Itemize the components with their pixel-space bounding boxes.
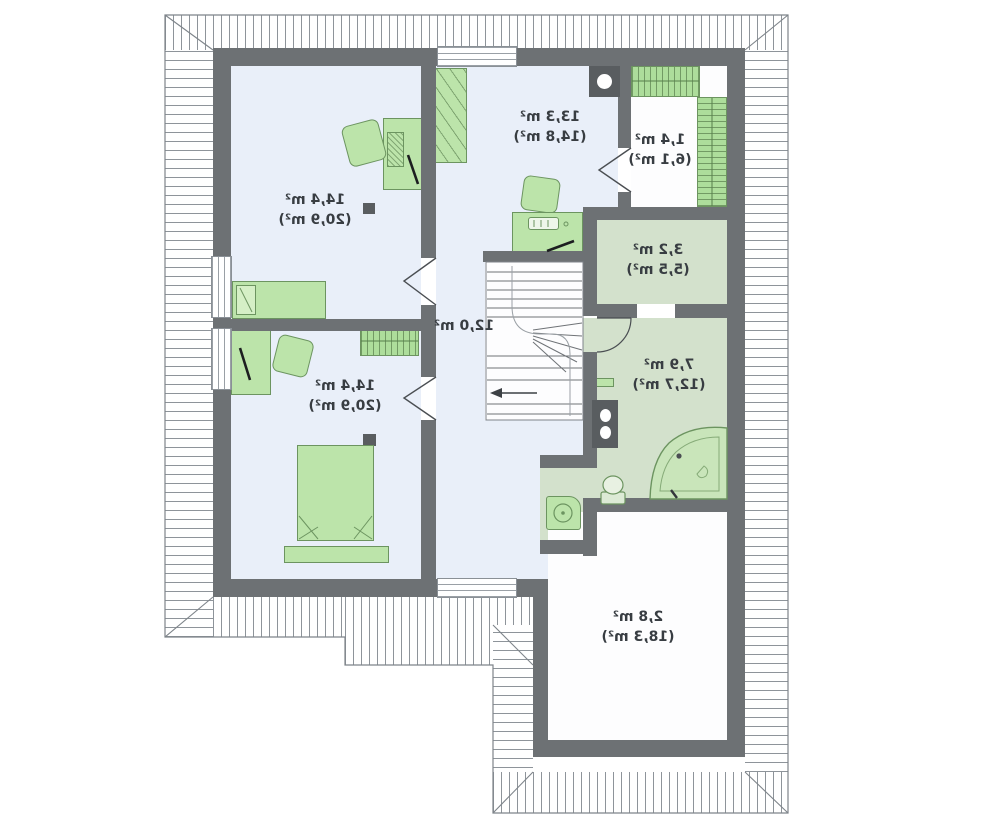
room-label-bedroom-top-middle: 13,3 m² (14,8 m²)	[514, 107, 587, 147]
pillow	[236, 285, 256, 315]
room-area: 1,4 m²	[628, 130, 691, 150]
wall-ext-bottom	[533, 740, 745, 757]
bench-icon	[284, 546, 389, 563]
room-area: 14,4 m²	[309, 376, 382, 396]
chimney-icon	[592, 400, 618, 448]
roof-band-left	[165, 50, 213, 637]
wall-wardrobe-left-b	[618, 192, 631, 207]
closet-shelves-icon	[433, 68, 467, 163]
flue-icon	[597, 74, 612, 89]
closet-shelves-icon	[697, 97, 727, 207]
room-label-storage-room: 3,2 m² (5,5 m²)	[626, 240, 689, 280]
double-bed-icon	[297, 445, 374, 541]
room-label-bedroom-top-left: 14,4 m² (20,9 m²)	[279, 190, 352, 230]
room-area-total: (6,1 m²)	[628, 150, 691, 170]
room-area: 2,8 m²	[602, 607, 675, 627]
wall-between-bedrooms	[231, 319, 421, 331]
roof-band-right	[745, 50, 788, 772]
closet-shelves-icon	[631, 66, 700, 97]
floor-hall-corridor	[436, 251, 485, 579]
room-area: 3,2 m²	[626, 240, 689, 260]
floor-stairwell	[485, 262, 583, 420]
room-label-attic-over-garage: 2,8 m² (18,3 m²)	[602, 607, 675, 647]
roof-band-bottom-mid	[345, 597, 533, 625]
wall-hall-left-c	[421, 420, 436, 579]
roof-band-bottom-mid2	[345, 625, 493, 665]
room-area-total: (14,8 m²)	[514, 127, 587, 147]
room-area-total: (20,9 m²)	[309, 396, 382, 416]
window-icon	[437, 578, 517, 598]
wall-stairs-right-a	[583, 220, 597, 316]
roof-band-top	[165, 15, 788, 50]
wall-alcove-top	[540, 455, 583, 468]
floor-plan: 14,4 m² (20,9 m²) 13,3 m² (14,8 m²) 1,4 …	[0, 0, 1000, 823]
room-area-total: (5,5 m²)	[626, 260, 689, 280]
window-icon	[211, 256, 232, 318]
room-area-total: (18,3 m²)	[602, 627, 675, 647]
post	[363, 203, 375, 214]
room-area: 13,3 m²	[514, 107, 587, 127]
room-label-bedroom-bottom-left: 14,4 m² (20,9 m²)	[309, 376, 382, 416]
chimney-icon	[589, 66, 620, 97]
room-area: 14,4 m²	[279, 190, 352, 210]
wall-storage-bath-right	[675, 304, 727, 318]
washing-machine-icon	[546, 496, 581, 530]
room-area: 7,9 m²	[633, 355, 706, 375]
wall-hall-left-a	[421, 48, 436, 258]
window-icon	[437, 46, 517, 67]
room-area-total: (20,9 m²)	[279, 210, 352, 230]
armchair-icon	[520, 175, 562, 215]
flue-icon	[600, 409, 611, 422]
room-area-total: (12,7 m²)	[633, 375, 706, 395]
roof-band-bottom-left	[213, 597, 345, 637]
wall-exterior-right	[727, 48, 745, 757]
wall-storage-bath-left	[597, 304, 637, 318]
room-label-bathroom: 7,9 m² (12,7 m²)	[633, 355, 706, 395]
window-icon	[211, 328, 232, 390]
desk-chair-icon	[387, 132, 404, 167]
room-label-hall: 12,0 m²	[434, 316, 494, 336]
keyboard-icon	[528, 217, 559, 230]
wall-exterior-left	[213, 48, 231, 597]
room-area: 12,0 m²	[434, 316, 494, 336]
roof-band-ext-bottom	[493, 772, 788, 813]
wall-garage-notch-h	[540, 540, 597, 554]
flue-icon	[600, 426, 611, 439]
wall-garage-room-top	[583, 498, 727, 512]
wardrobe-icon	[360, 327, 419, 356]
desk-icon	[231, 329, 271, 395]
wall-ext-left	[533, 583, 548, 757]
room-label-wardrobe-room: 1,4 m² (6,1 m²)	[628, 130, 691, 170]
wall-storage-top	[583, 207, 727, 220]
wall-stairs-top	[483, 251, 597, 262]
